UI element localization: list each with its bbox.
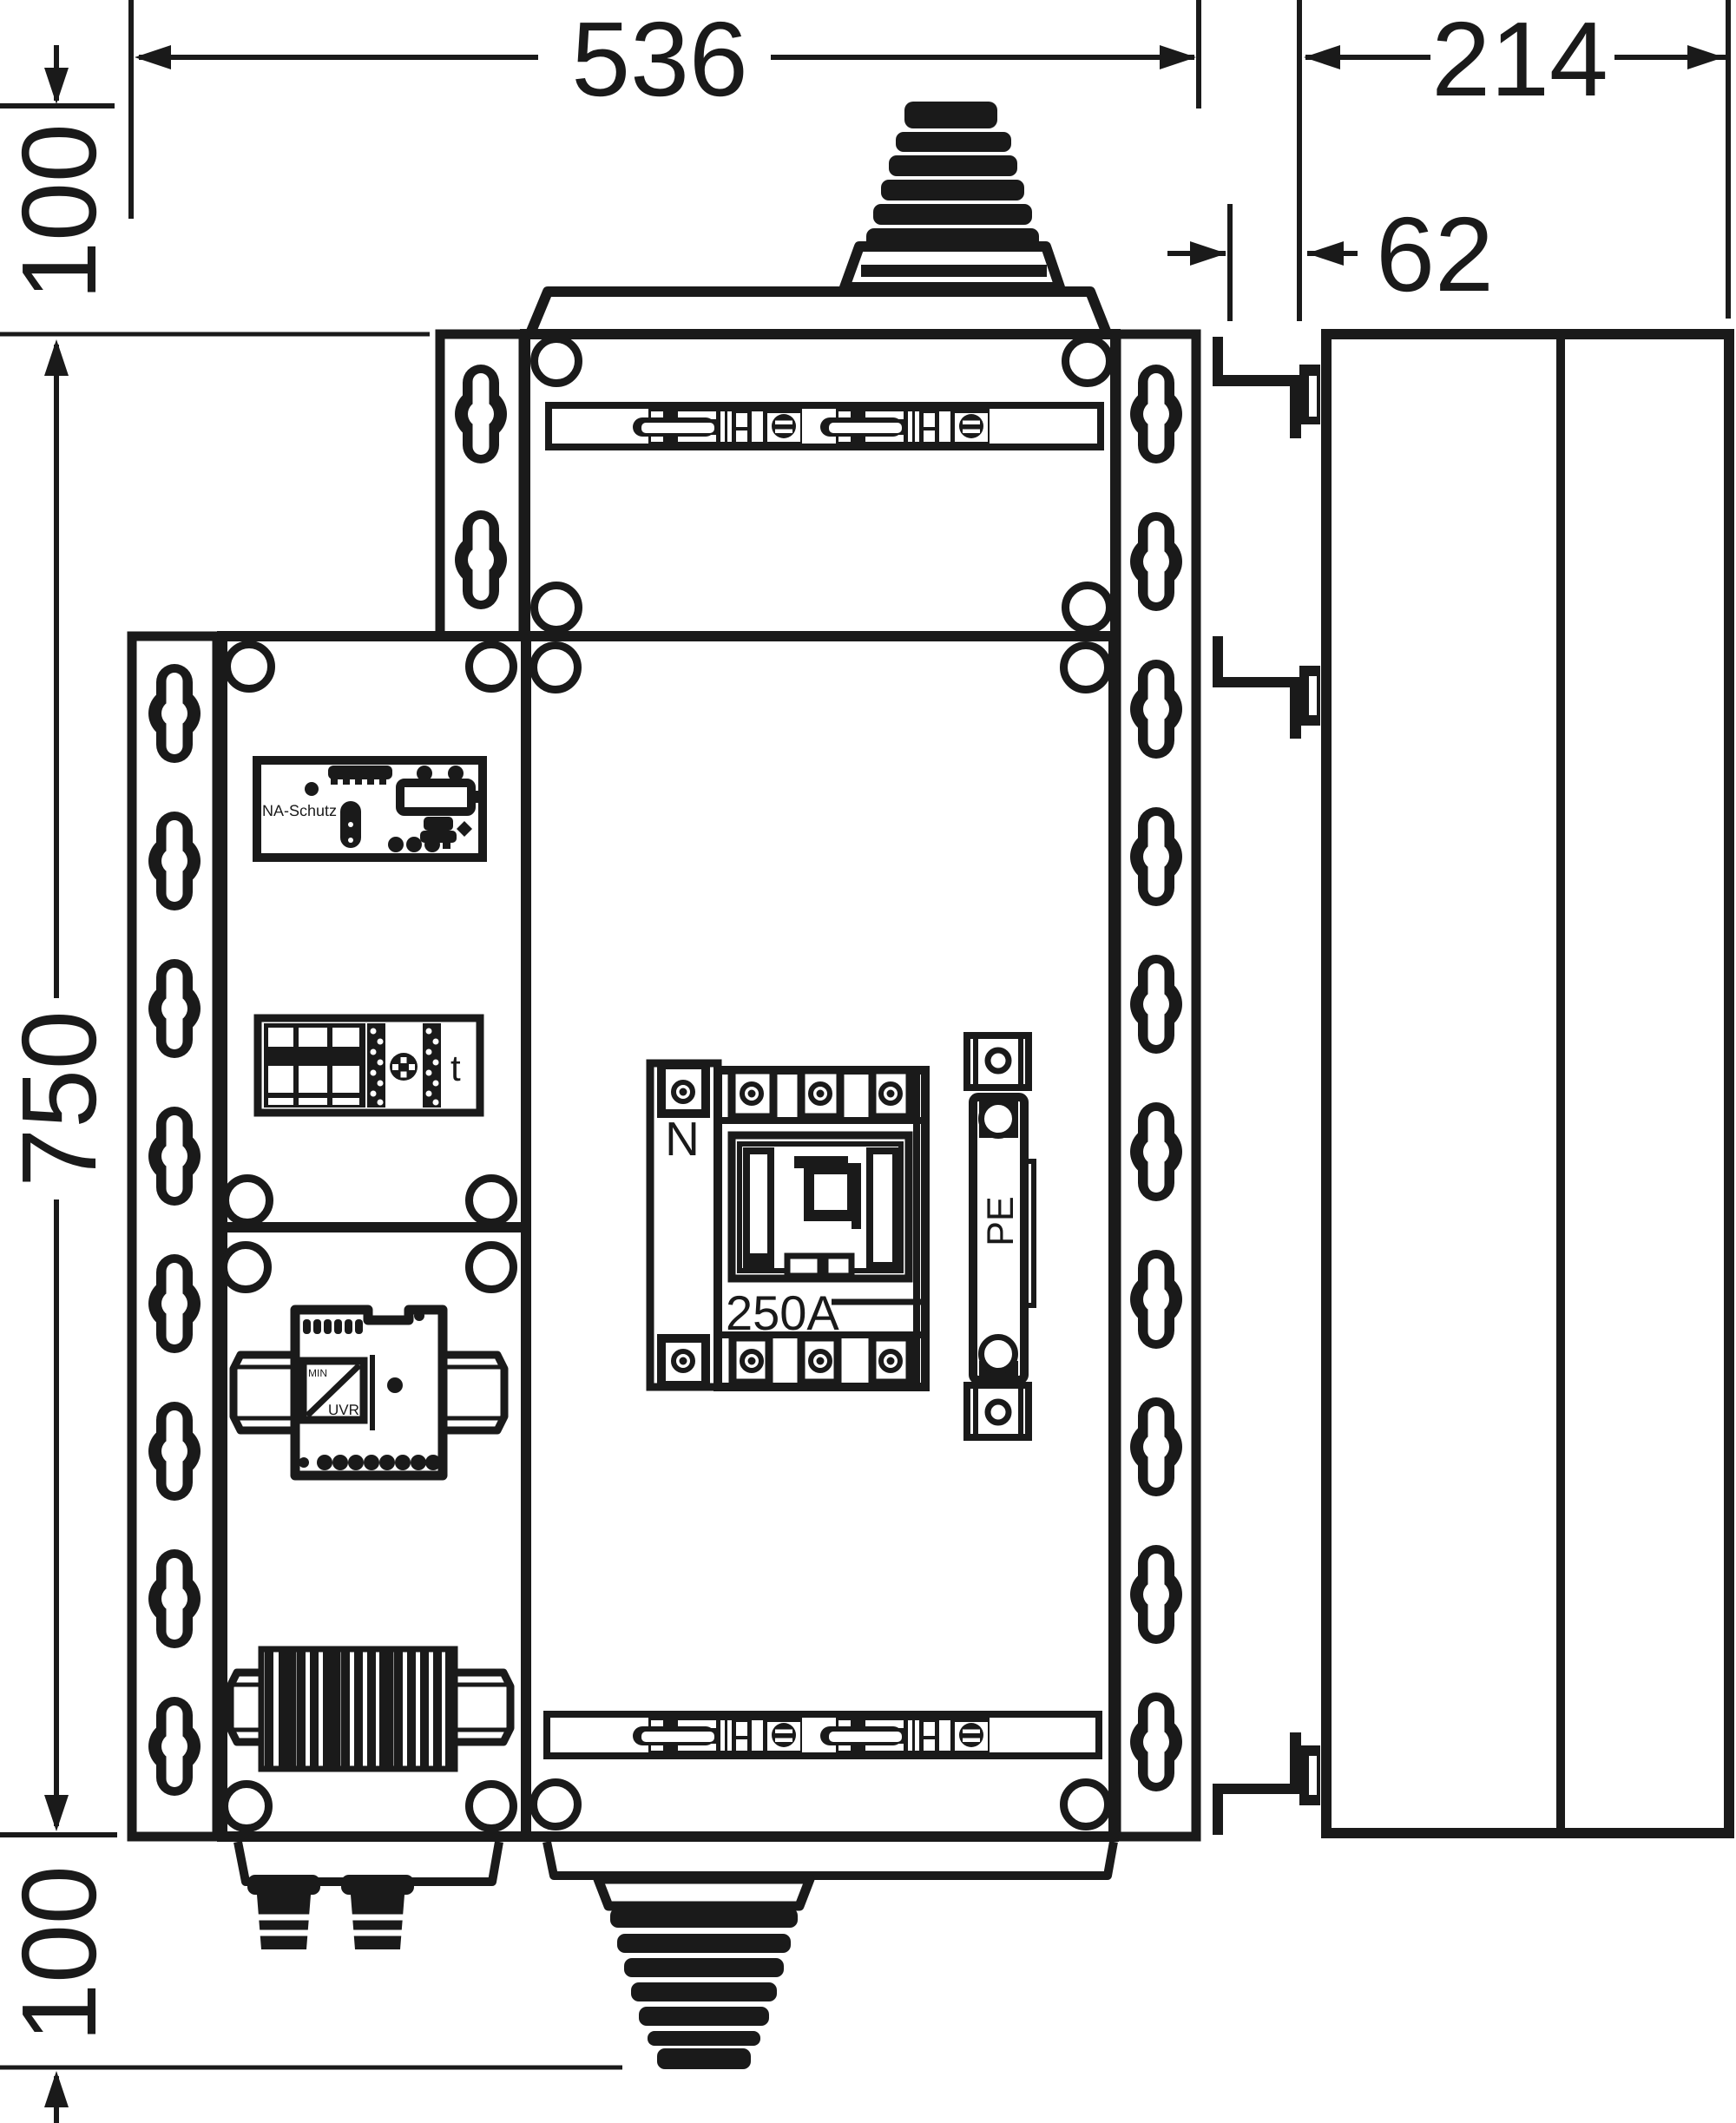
svg-text:UVR: UVR — [328, 1402, 359, 1418]
svg-text:214: 214 — [1431, 0, 1608, 118]
svg-text:NA-Schutz: NA-Schutz — [262, 802, 337, 819]
svg-text:MIN: MIN — [308, 1367, 327, 1379]
svg-text:100: 100 — [0, 1865, 118, 2042]
svg-text:250A: 250A — [726, 1285, 839, 1340]
svg-text:62: 62 — [1376, 195, 1494, 313]
svg-text:536: 536 — [571, 0, 748, 118]
svg-text:100: 100 — [0, 123, 118, 300]
svg-text:750: 750 — [0, 1010, 118, 1187]
svg-text:PE: PE — [980, 1196, 1022, 1246]
svg-text:t: t — [450, 1048, 461, 1088]
svg-text:N: N — [665, 1112, 700, 1166]
